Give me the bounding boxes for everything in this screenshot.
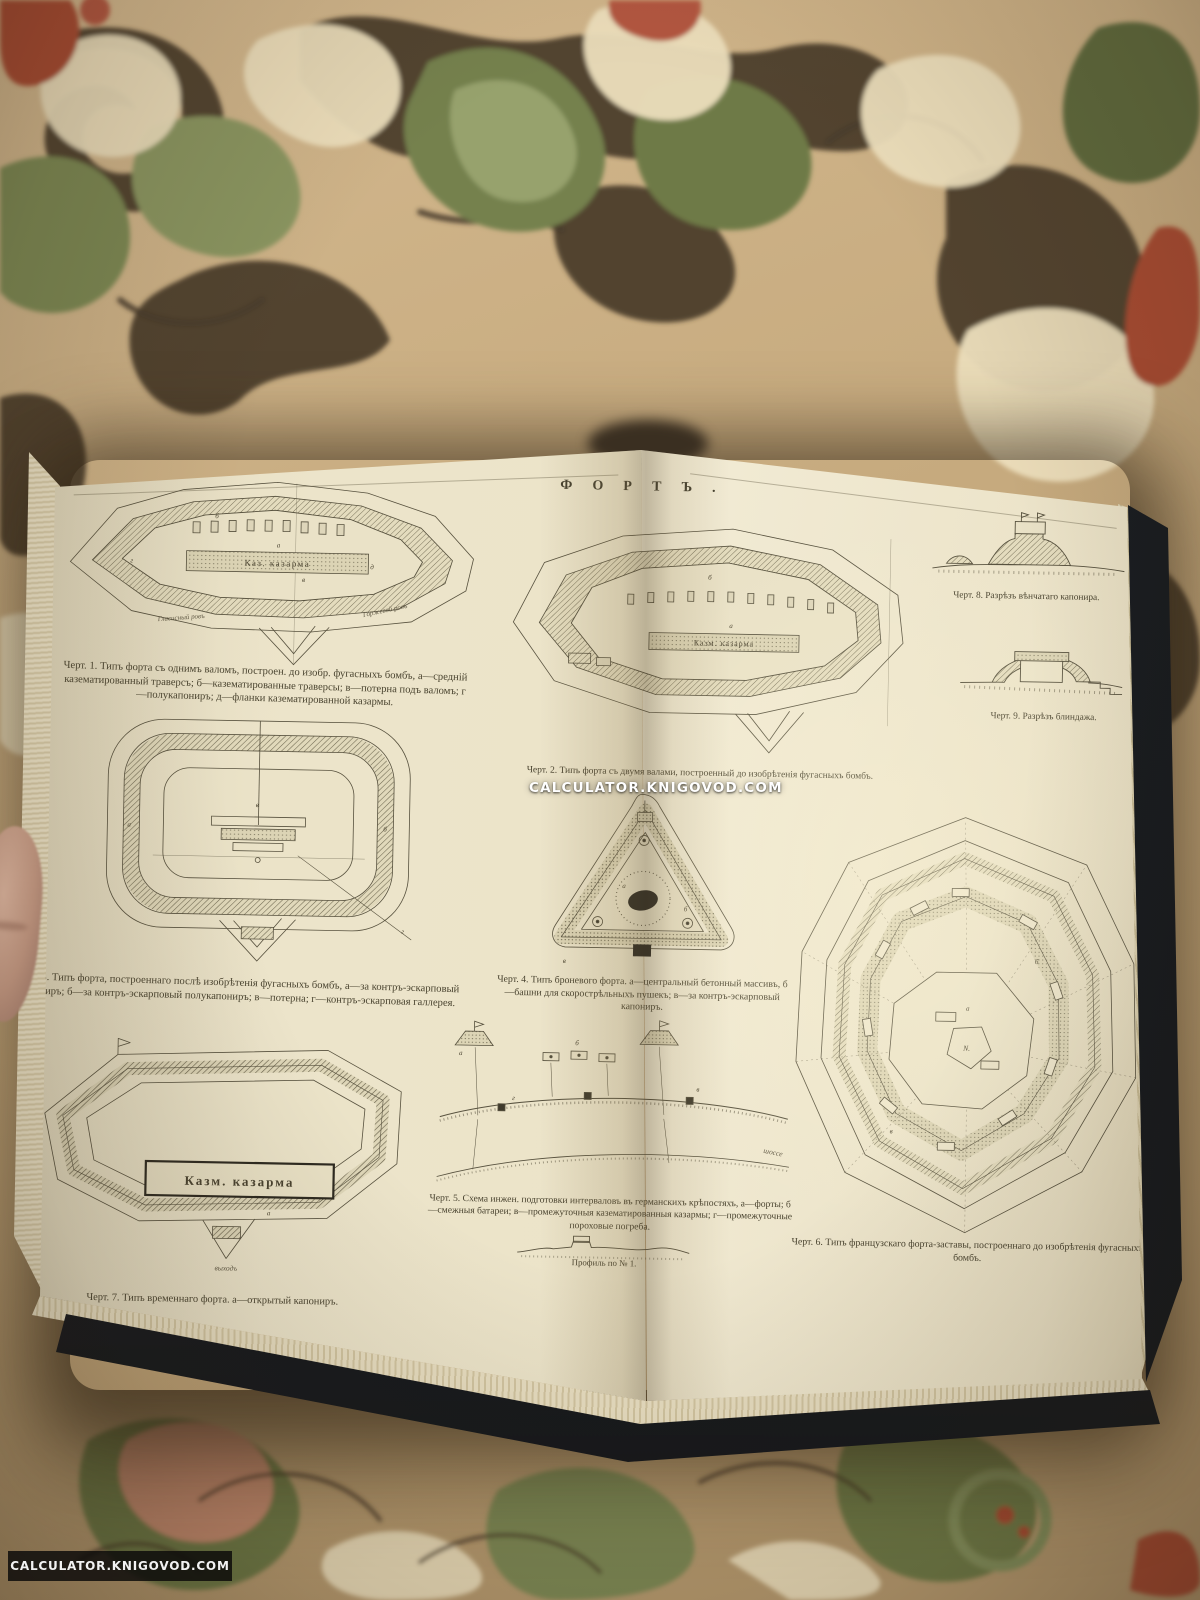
- watermark-bottom: CALCULATOR.KNIGOVOD.COM: [8, 1551, 232, 1581]
- svg-text:д: д: [370, 563, 374, 571]
- figure-9-diagram: [956, 624, 1128, 712]
- svg-text:г: г: [401, 928, 404, 936]
- svg-text:а: а: [267, 1209, 271, 1217]
- svg-text:г: г: [130, 557, 133, 565]
- book-photo: ФОРТЪ.: [0, 0, 1200, 1600]
- svg-text:в: в: [302, 576, 305, 584]
- watermark-bottom-text: CALCULATOR.KNIGOVOD.COM: [10, 1559, 229, 1573]
- svg-text:а: а: [277, 541, 281, 549]
- fig5-road-label: шоссе: [763, 1146, 784, 1159]
- svg-text:б: б: [575, 1039, 579, 1047]
- svg-text:б: б: [684, 905, 688, 913]
- svg-text:в: в: [696, 1086, 699, 1094]
- svg-text:в: в: [256, 801, 259, 809]
- svg-text:г: г: [512, 1094, 515, 1102]
- figure-2-diagram: Казм. казарма ба: [497, 504, 917, 767]
- figure-7-diagram: Казм. казарма выходъ а: [26, 1017, 421, 1279]
- figure-8-diagram: [928, 506, 1129, 590]
- svg-text:а: а: [127, 821, 131, 829]
- svg-text:а: а: [459, 1049, 463, 1057]
- figure-8-caption: Черт. 8. Разрѣзъ вѣнчатаго капонира.: [924, 590, 1129, 606]
- figure-5-diagram: шоссе аб вг: [432, 1018, 795, 1200]
- profile-label: Профиль по № 1.: [539, 1257, 669, 1271]
- figure-6-diagram: N. аб в: [782, 809, 1145, 1241]
- figure-6-caption: Черт. 6. Типъ французскаго форта-заставы…: [791, 1236, 1143, 1268]
- svg-text:а: а: [729, 622, 733, 630]
- svg-text:N.: N.: [962, 1044, 970, 1053]
- fig7-barracks-label: Казм. казарма: [184, 1173, 294, 1190]
- fig7-exit-label: выходъ: [214, 1263, 237, 1272]
- fig1-barracks-label: Каз. казарма: [244, 558, 310, 569]
- svg-text:в: в: [563, 957, 566, 965]
- figure-3-caption: Черт. 3. Типъ форта, построеннаго послѣ …: [13, 970, 462, 1010]
- figure-1-diagram: Каз. казарма Гласисный ровъ Горжевой ров…: [62, 463, 481, 671]
- figure-4-diagram: аб в: [535, 786, 754, 975]
- fig2-barracks-label: Казм. казарма: [694, 638, 755, 648]
- svg-text:б: б: [708, 574, 712, 582]
- svg-text:б: б: [383, 825, 387, 833]
- svg-text:б: б: [215, 512, 219, 520]
- svg-text:а: а: [966, 1005, 970, 1013]
- watermark-center: CALCULATOR.KNIGOVOD.COM: [529, 780, 783, 796]
- figure-3-diagram: аб вг: [91, 702, 426, 968]
- figure-9-caption: Черт. 9. Разрѣзъ блиндажа.: [943, 710, 1143, 726]
- fig1-glacis-ditch-label: Гласисный ровъ: [156, 612, 205, 623]
- svg-text:в: в: [890, 1127, 893, 1135]
- svg-text:б: б: [1035, 958, 1039, 966]
- figure-4-caption: Черт. 4. Типъ броневого форта. а—централ…: [496, 974, 789, 1017]
